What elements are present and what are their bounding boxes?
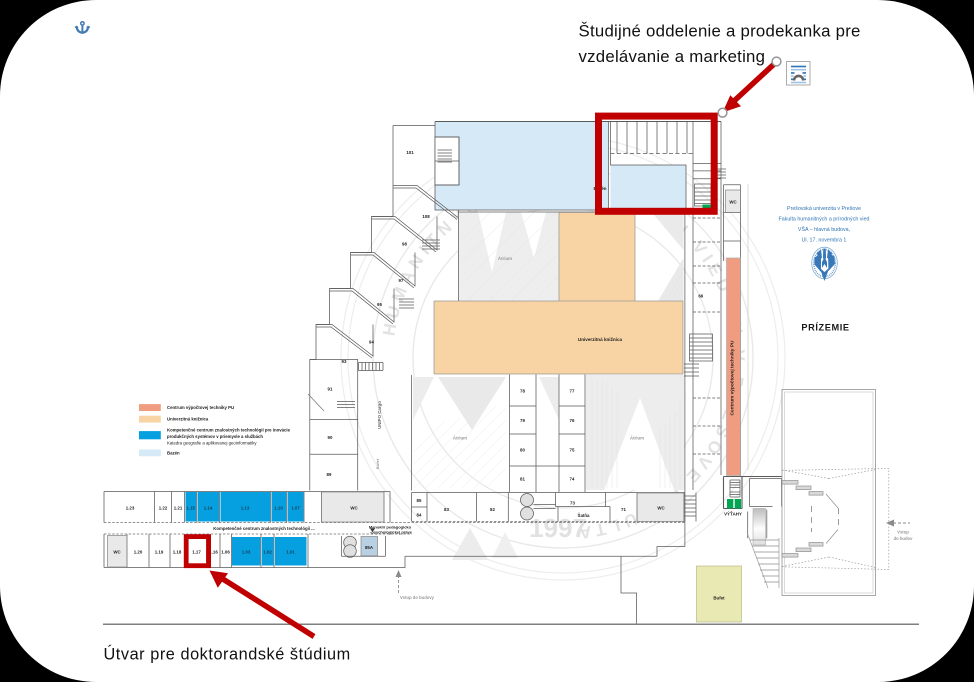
svg-text:WC: WC (350, 506, 358, 511)
svg-text:Fakulta humanitných a prírodný: Fakulta humanitných a prírodných vied (779, 217, 870, 223)
svg-text:Ul. 17. novembra 1: Ul. 17. novembra 1 (802, 238, 847, 244)
svg-text:Centrum výpočtovej techniky PU: Centrum výpočtovej techniky PU (167, 405, 234, 410)
svg-text:Átrium: Átrium (630, 436, 644, 441)
svg-text:97: 97 (399, 278, 404, 283)
svg-text:101: 101 (406, 150, 414, 155)
svg-text:do budov: do budov (894, 536, 914, 541)
svg-text:Bazén: Bazén (167, 450, 180, 455)
svg-text:1.23: 1.23 (126, 506, 135, 511)
svg-text:83: 83 (444, 507, 449, 512)
svg-text:Katedra geografie a aplikovane: Katedra geografie a aplikovanej geoinfor… (167, 441, 257, 446)
svg-text:1.18: 1.18 (173, 550, 182, 555)
svg-text:82: 82 (490, 507, 495, 512)
svg-text:98: 98 (402, 242, 407, 247)
svg-text:-psychologickej prave: -psychologickej prave (370, 529, 413, 534)
svg-text:UNIPO Cargo: UNIPO Cargo (377, 401, 382, 429)
svg-text:66: 66 (698, 294, 703, 299)
svg-text:Bufet: Bufet (375, 458, 380, 469)
svg-text:vzdelávanie a marketing: vzdelávanie a marketing (579, 47, 766, 66)
svg-text:75: 75 (570, 448, 575, 453)
svg-text:Univerzitná knižnica: Univerzitná knižnica (167, 417, 209, 422)
svg-text:Šatňa: Šatňa (578, 513, 591, 518)
svg-text:Centrum výpočtovej techniky PU: Centrum výpočtovej techniky PU (730, 340, 736, 415)
svg-text:1.03: 1.03 (242, 550, 251, 555)
svg-text:1.14: 1.14 (204, 506, 213, 511)
svg-text:1.22: 1.22 (159, 506, 168, 511)
svg-text:Átrium: Átrium (453, 436, 467, 441)
svg-text:78: 78 (520, 389, 525, 394)
svg-text:1.06: 1.06 (221, 550, 230, 555)
svg-text:Univerzitná knižnica: Univerzitná knižnica (578, 337, 623, 342)
svg-text:85: 85 (417, 498, 422, 503)
svg-text:1.01: 1.01 (286, 550, 295, 555)
svg-text:1.17: 1.17 (192, 550, 201, 555)
svg-text:1.02: 1.02 (263, 550, 272, 555)
svg-text:81: 81 (520, 477, 525, 482)
svg-text:93: 93 (342, 359, 347, 364)
svg-text:Kompetenčné centrum znalostnýc: Kompetenčné centrum znalostných technoló… (167, 428, 291, 433)
svg-text:produkčných systémov v priemys: produkčných systémov v priemysle a služb… (167, 434, 263, 439)
svg-text:84: 84 (417, 513, 422, 518)
svg-text:Vstup: Vstup (897, 530, 909, 535)
svg-text:108: 108 (422, 214, 430, 219)
svg-text:VŠA – hlavná budova,: VŠA – hlavná budova, (798, 226, 850, 233)
svg-text:90: 90 (328, 435, 333, 440)
svg-text:74: 74 (570, 477, 575, 482)
svg-text:79: 79 (520, 418, 525, 423)
svg-text:Átrium: Átrium (498, 256, 512, 261)
svg-text:80: 80 (520, 448, 525, 453)
svg-text:89: 89 (327, 472, 332, 477)
svg-text:1.20: 1.20 (134, 550, 143, 555)
svg-text:VÝŤAHY: VÝŤAHY (724, 512, 742, 517)
svg-text:94: 94 (369, 340, 374, 345)
svg-text:91: 91 (328, 387, 333, 392)
svg-text:71: 71 (621, 507, 626, 512)
svg-text:77: 77 (570, 389, 575, 394)
svg-text:Útvar pre doktorandské štúdium: Útvar pre doktorandské štúdium (104, 645, 351, 664)
svg-text:PRÍZEMIE: PRÍZEMIE (801, 322, 849, 333)
svg-text:1.15: 1.15 (186, 506, 195, 511)
svg-text:95: 95 (377, 302, 382, 307)
svg-text:Vstup do budovy: Vstup do budovy (400, 595, 435, 600)
svg-text:1.10: 1.10 (274, 506, 283, 511)
svg-text:Kompetenčné centrum znalostnýc: Kompetenčné centrum znalostných technoló… (213, 526, 314, 531)
svg-text:WC: WC (113, 550, 121, 555)
svg-text:73: 73 (570, 501, 575, 506)
svg-text:1.19: 1.19 (155, 550, 164, 555)
svg-text:1.07: 1.07 (291, 506, 300, 511)
svg-text:Študijné oddelenie a prodekank: Študijné oddelenie a prodekanka pre (579, 22, 861, 41)
svg-text:WC: WC (729, 200, 737, 205)
svg-text:85A: 85A (365, 545, 374, 550)
svg-text:76: 76 (570, 418, 575, 423)
svg-text:Prešovská univerzita v Prešove: Prešovská univerzita v Prešove (787, 206, 861, 212)
svg-text:Bufet: Bufet (713, 596, 725, 601)
svg-text:WC: WC (657, 506, 665, 511)
svg-text:1.21: 1.21 (174, 506, 183, 511)
svg-text:1.13: 1.13 (241, 506, 250, 511)
